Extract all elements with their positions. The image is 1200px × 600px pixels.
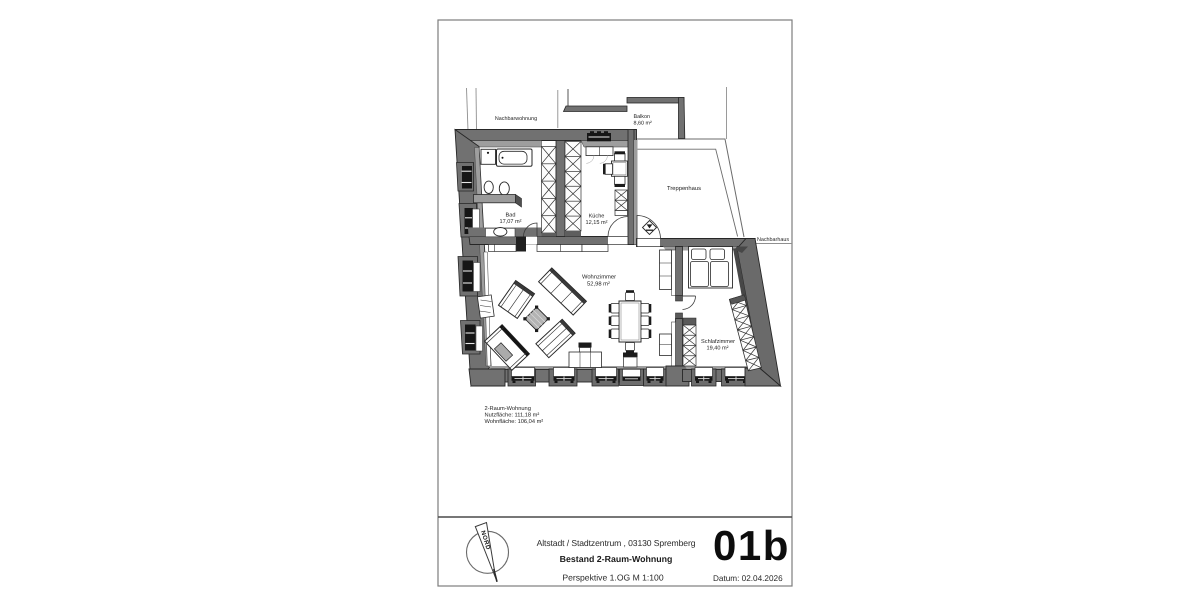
svg-text:Nutzfläche: 111,18 m²: Nutzfläche: 111,18 m² xyxy=(485,412,540,419)
svg-text:17,07 m²: 17,07 m² xyxy=(499,219,521,225)
svg-text:12,15 m²: 12,15 m² xyxy=(585,220,607,226)
svg-text:Bestand 2-Raum-Wohnung: Bestand 2-Raum-Wohnung xyxy=(560,554,673,564)
svg-text:19,40 m²: 19,40 m² xyxy=(706,346,728,352)
svg-text:Schlafzimmer: Schlafzimmer xyxy=(701,338,735,345)
svg-text:Nachbarhaus: Nachbarhaus xyxy=(757,237,789,243)
svg-text:Bad: Bad xyxy=(506,212,516,219)
svg-text:Perspektive 1.OG M 1:100: Perspektive 1.OG M 1:100 xyxy=(562,573,663,583)
svg-text:Wohnfläche: 106,04 m²: Wohnfläche: 106,04 m² xyxy=(485,418,544,425)
svg-text:Nachbarwohnung: Nachbarwohnung xyxy=(495,116,537,122)
svg-text:Treppenhaus: Treppenhaus xyxy=(667,185,701,192)
svg-text:01b: 01b xyxy=(713,522,790,569)
svg-text:Küche: Küche xyxy=(589,213,605,220)
svg-text:Balkon: Balkon xyxy=(634,114,650,120)
svg-text:Altstadt / Stadtzentrum , 0313: Altstadt / Stadtzentrum , 03130 Sprember… xyxy=(537,538,696,548)
svg-text:2-Raum-Wohnung: 2-Raum-Wohnung xyxy=(485,405,531,412)
svg-text:8,60 m²: 8,60 m² xyxy=(634,121,652,127)
svg-text:Datum: 02.04.2026: Datum: 02.04.2026 xyxy=(713,574,783,583)
svg-text:52,98 m²: 52,98 m² xyxy=(587,281,610,288)
svg-text:Wohnzimmer: Wohnzimmer xyxy=(582,274,616,281)
